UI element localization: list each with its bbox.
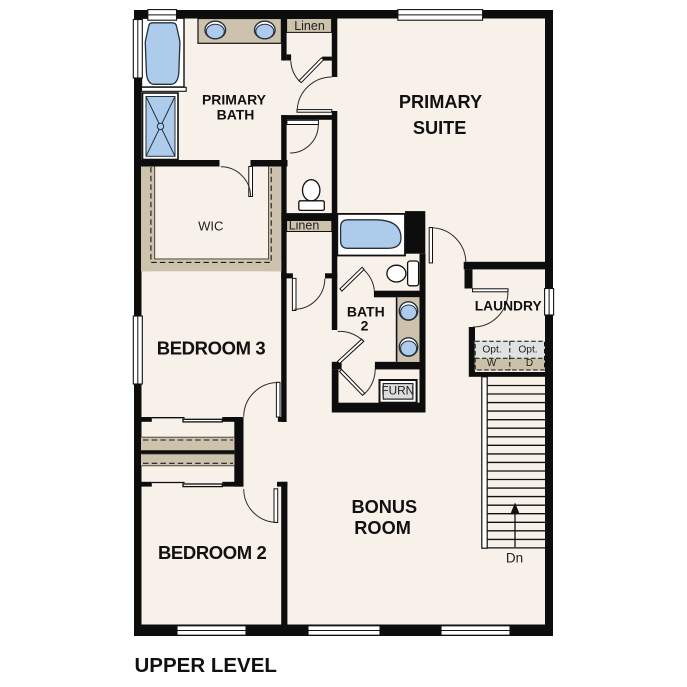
svg-text:Linen: Linen	[289, 219, 320, 233]
svg-text:BONUS: BONUS	[351, 497, 417, 517]
svg-text:BEDROOM 3: BEDROOM 3	[157, 337, 266, 358]
svg-text:ROOM: ROOM	[354, 518, 411, 538]
svg-text:W: W	[487, 358, 497, 369]
svg-text:LAUNDRY: LAUNDRY	[475, 299, 542, 314]
svg-text:SUITE: SUITE	[413, 118, 467, 138]
svg-text:2: 2	[361, 318, 369, 334]
svg-text:Opt.: Opt.	[482, 344, 501, 355]
svg-text:BATH: BATH	[217, 107, 255, 123]
svg-text:BEDROOM 2: BEDROOM 2	[158, 542, 267, 563]
svg-text:FURN: FURN	[381, 384, 414, 398]
svg-text:PRIMARY: PRIMARY	[202, 91, 267, 107]
svg-text:PRIMARY: PRIMARY	[399, 92, 482, 112]
svg-text:D: D	[526, 358, 533, 369]
svg-text:Opt.: Opt.	[518, 344, 537, 355]
svg-text:UPPER LEVEL: UPPER LEVEL	[135, 654, 277, 677]
svg-text:Dn: Dn	[506, 550, 523, 565]
svg-text:WIC: WIC	[198, 219, 223, 234]
svg-text:Linen: Linen	[294, 19, 325, 33]
